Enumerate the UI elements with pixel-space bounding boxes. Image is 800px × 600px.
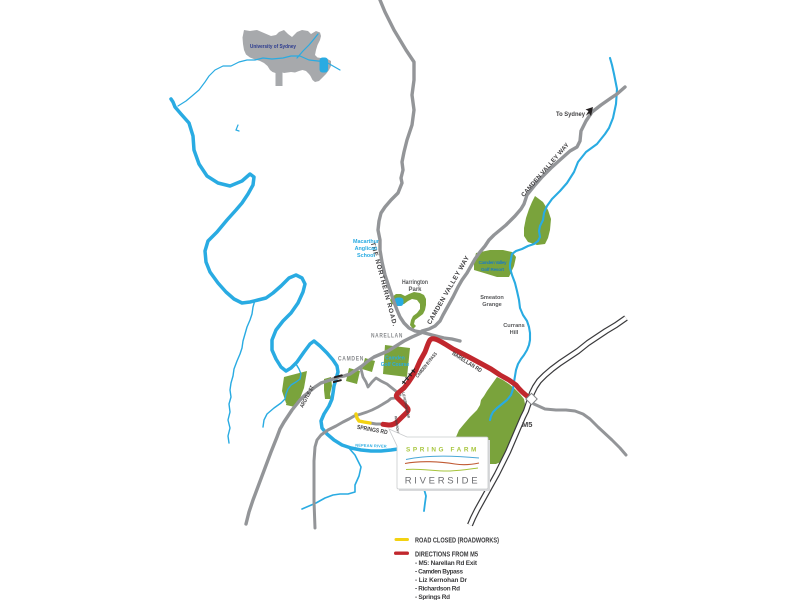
svg-text:Camden: Camden [385,356,405,362]
svg-text:School: School [357,253,375,259]
svg-text:Camden Valley: Camden Valley [479,260,507,265]
svg-text:- Camden Bypass: - Camden Bypass [415,569,463,576]
svg-text:To Sydney: To Sydney [556,111,585,118]
svg-text:RIVERSIDE: RIVERSIDE [405,476,481,487]
svg-text:NARELLAN: NARELLAN [371,333,403,340]
svg-text:- Richardson Rd: - Richardson Rd [415,586,460,593]
svg-text:University of Sydney: University of Sydney [250,44,297,50]
svg-text:- Springs Rd: - Springs Rd [415,594,450,600]
svg-text:- Liz Kernohan Dr: - Liz Kernohan Dr [415,577,468,584]
svg-text:Golf Resort: Golf Resort [481,267,504,272]
svg-text:Grange: Grange [482,302,502,308]
svg-text:Park: Park [408,287,422,293]
svg-text:ROAD CLOSED (ROADWORKS): ROAD CLOSED (ROADWORKS) [415,538,499,545]
svg-text:Macarthur: Macarthur [353,239,380,245]
svg-text:Smeaton: Smeaton [480,295,504,301]
svg-text:CAMDEN: CAMDEN [338,356,364,363]
svg-text:- M5: Narellan Rd Exit: - M5: Narellan Rd Exit [415,560,478,567]
svg-text:SPRING FARM: SPRING FARM [406,447,479,454]
svg-text:M5: M5 [522,420,532,429]
svg-text:Hill: Hill [510,330,519,336]
svg-text:Golf Course: Golf Course [381,362,410,368]
svg-text:DIRECTIONS FROM M5: DIRECTIONS FROM M5 [415,552,478,559]
svg-text:Currans: Currans [503,323,524,329]
svg-text:Harrington: Harrington [402,280,428,286]
svg-text:Anglican: Anglican [355,246,378,252]
